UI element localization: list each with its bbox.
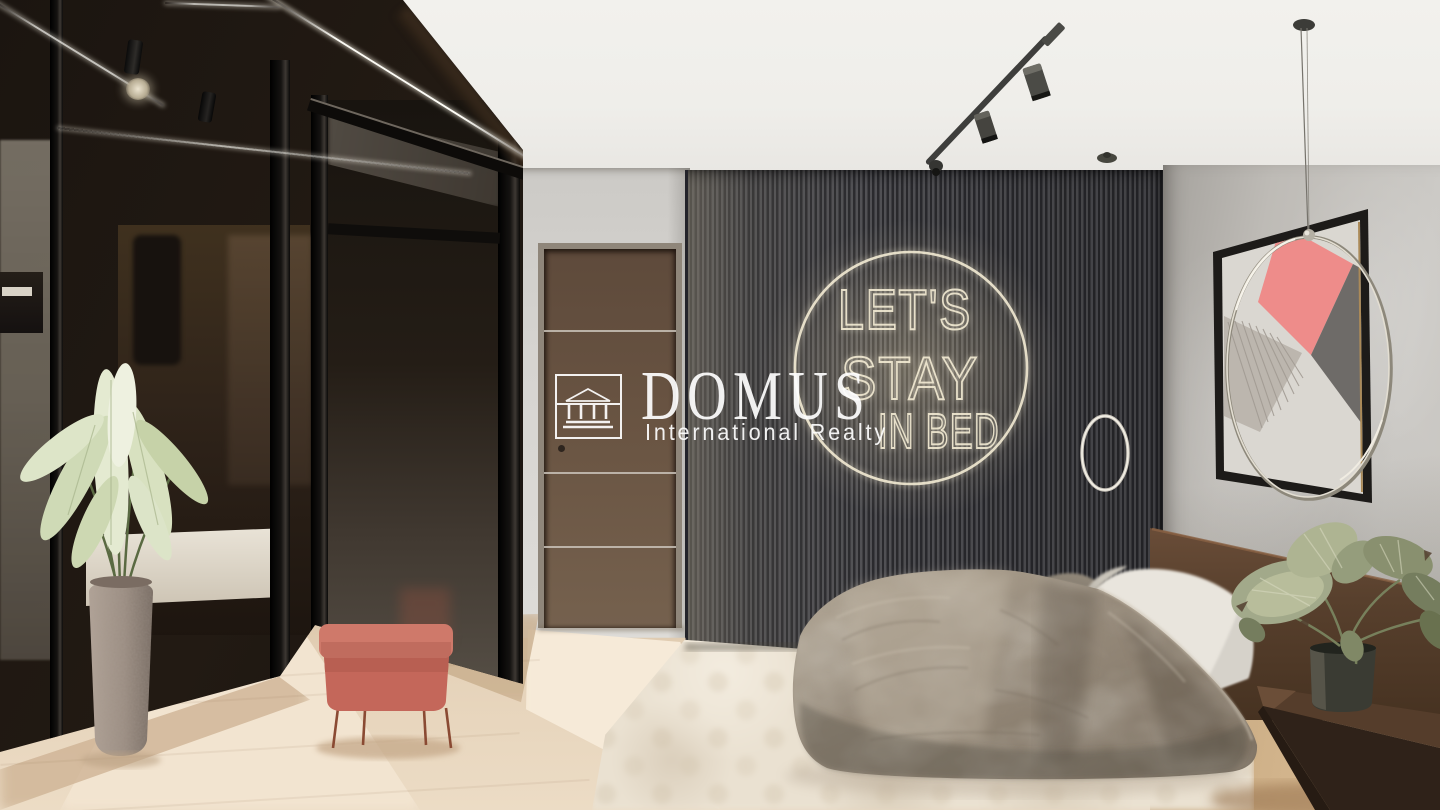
svg-text:LET'S: LET'S [838,278,972,342]
svg-text:IN BED: IN BED [878,405,1000,459]
svg-text:International Realty: International Realty [645,419,888,445]
